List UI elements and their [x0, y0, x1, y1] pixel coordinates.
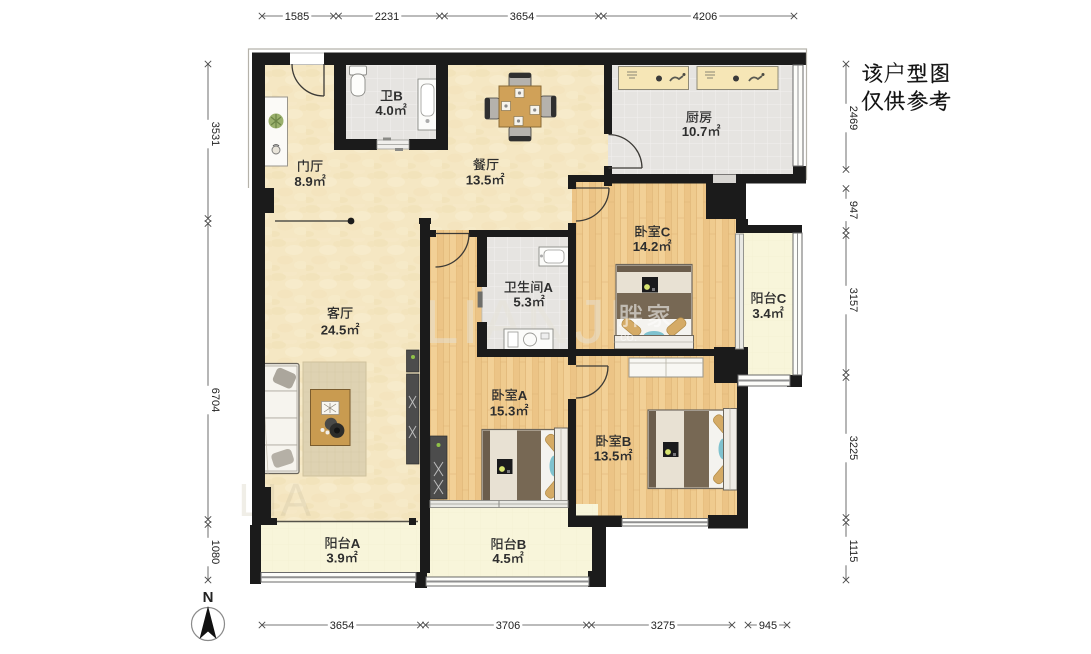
svg-text:B: B	[517, 537, 527, 552]
svg-text:1585: 1585	[285, 11, 309, 23]
svg-text:14.2: 14.2	[633, 239, 659, 254]
svg-text:C: C	[777, 291, 787, 306]
svg-text:1115: 1115	[847, 540, 859, 563]
svg-text:A: A	[351, 536, 361, 551]
svg-text:A: A	[543, 280, 553, 295]
svg-text:8.9: 8.9	[294, 174, 312, 189]
svg-text:13.5: 13.5	[466, 172, 492, 187]
svg-text:4.5: 4.5	[492, 551, 510, 566]
svg-text:4206: 4206	[693, 11, 717, 23]
svg-text:B: B	[622, 434, 632, 449]
svg-text:1080: 1080	[209, 540, 221, 564]
svg-text:4.0: 4.0	[375, 103, 393, 118]
svg-text:13.5: 13.5	[594, 448, 620, 463]
svg-text:3225: 3225	[847, 436, 859, 460]
svg-text:15.3: 15.3	[490, 403, 516, 418]
svg-text:24.5: 24.5	[321, 322, 347, 337]
svg-text:N: N	[203, 589, 214, 606]
svg-text:3706: 3706	[496, 620, 520, 632]
svg-text:C: C	[661, 224, 671, 239]
svg-text:3275: 3275	[651, 620, 675, 632]
svg-text:3654: 3654	[510, 11, 534, 23]
svg-text:3531: 3531	[209, 122, 221, 146]
svg-text:945: 945	[759, 620, 777, 632]
svg-text:6704: 6704	[209, 388, 221, 412]
svg-text:947: 947	[847, 201, 859, 219]
svg-text:5.3: 5.3	[513, 294, 531, 309]
svg-text:3157: 3157	[847, 288, 859, 312]
svg-text:co.: co.	[620, 329, 637, 344]
svg-text:3.4: 3.4	[752, 306, 771, 321]
svg-text:3.9: 3.9	[326, 550, 344, 565]
svg-text:A: A	[518, 388, 528, 403]
svg-text:B: B	[393, 88, 403, 103]
svg-text:10.7: 10.7	[682, 124, 708, 139]
svg-text:2469: 2469	[847, 106, 859, 130]
svg-text:3654: 3654	[330, 620, 354, 632]
svg-text:2231: 2231	[375, 11, 399, 23]
